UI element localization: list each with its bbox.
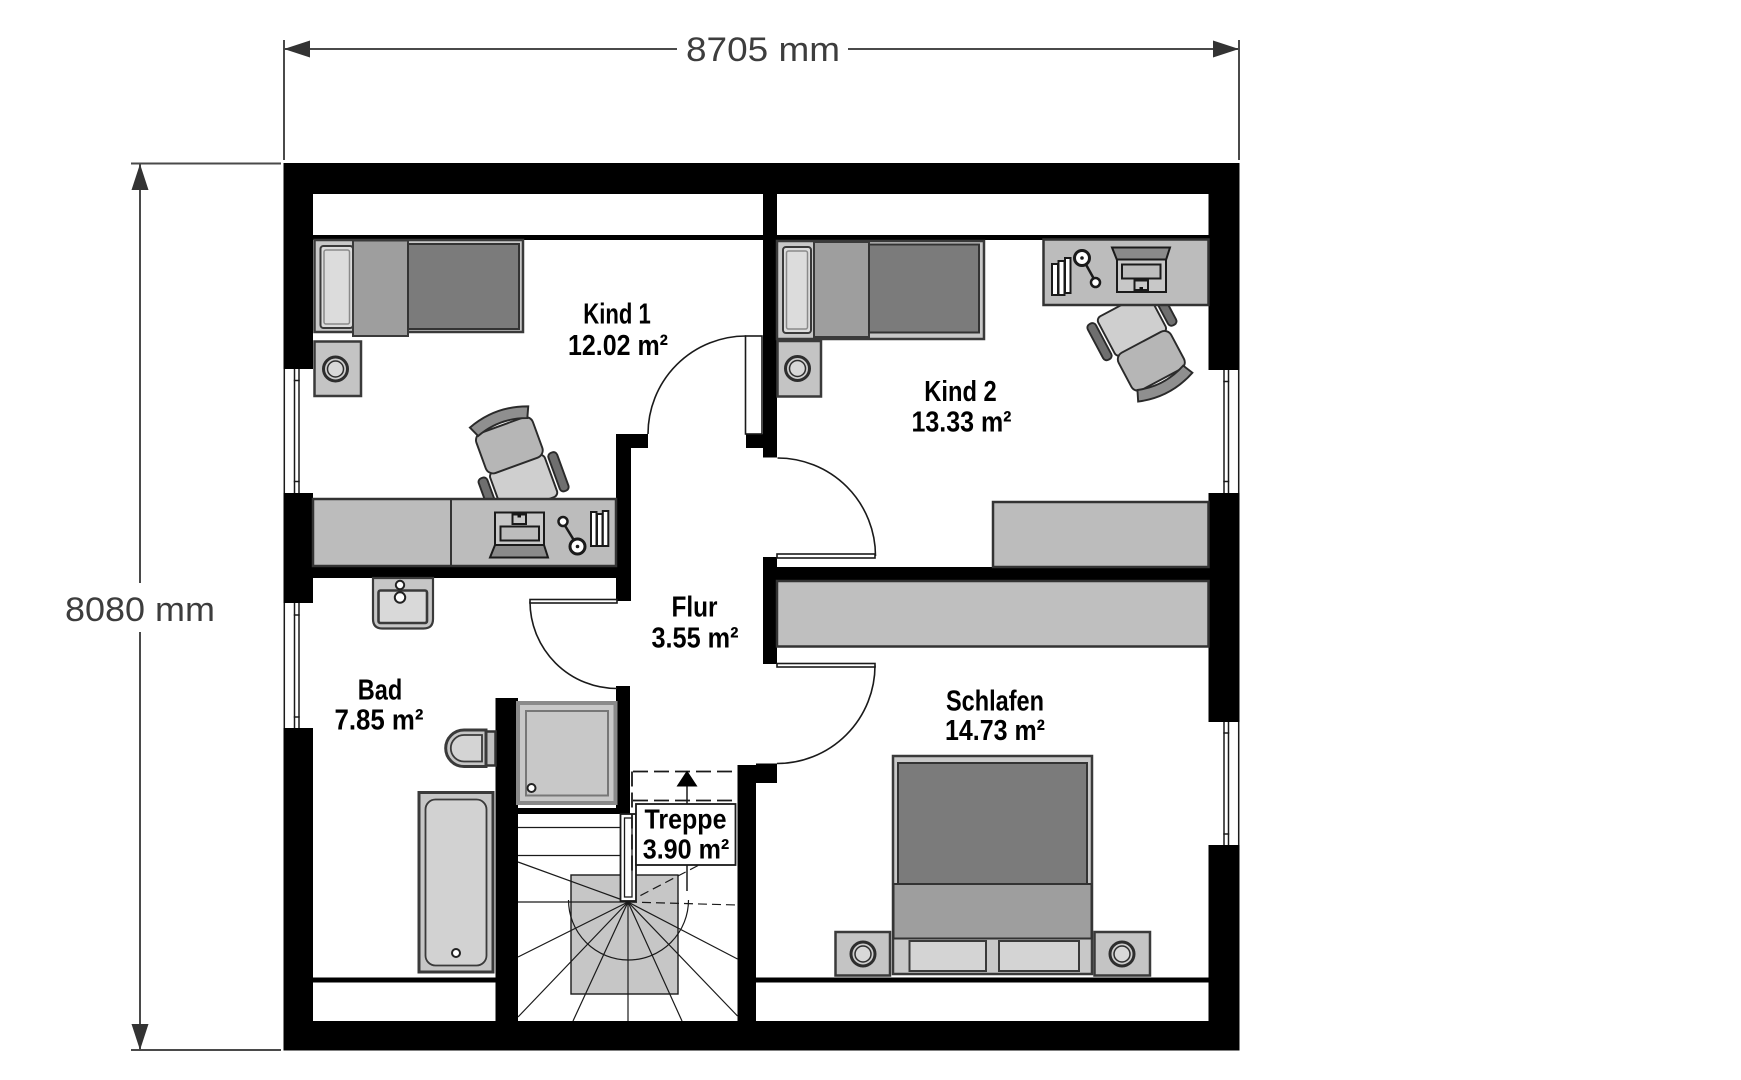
svg-text:12.02 m²: 12.02 m² [568, 330, 668, 362]
svg-text:3.90 m²: 3.90 m² [643, 833, 730, 864]
svg-text:Flur: Flur [672, 592, 718, 624]
svg-text:3.55 m²: 3.55 m² [652, 623, 739, 655]
svg-text:7.85 m²: 7.85 m² [335, 705, 424, 737]
svg-text:Kind 1: Kind 1 [583, 299, 651, 331]
svg-text:Schlafen: Schlafen [946, 686, 1044, 718]
svg-text:13.33 m²: 13.33 m² [912, 407, 1012, 439]
svg-text:8080 mm: 8080 mm [65, 591, 215, 629]
svg-text:14.73 m²: 14.73 m² [945, 715, 1045, 747]
svg-text:8705 mm: 8705 mm [686, 31, 840, 69]
svg-text:Treppe: Treppe [645, 804, 727, 835]
svg-text:Kind 2: Kind 2 [924, 376, 997, 408]
svg-text:Bad: Bad [358, 675, 403, 707]
